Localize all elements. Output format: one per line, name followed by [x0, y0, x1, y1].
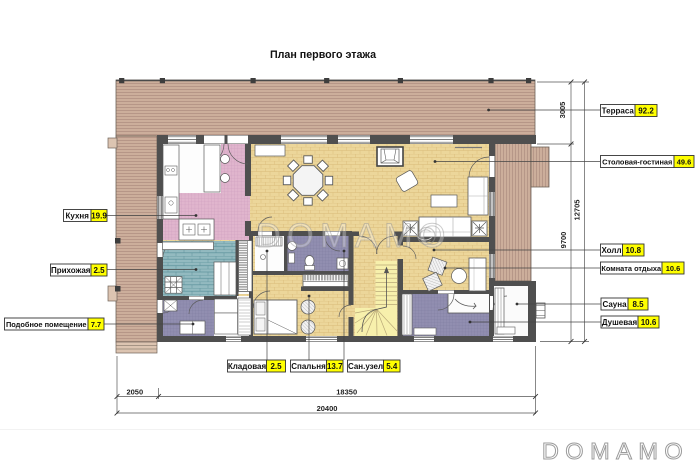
svg-text:12705: 12705 [573, 200, 582, 221]
svg-text:5.4: 5.4 [386, 362, 398, 371]
svg-text:2.5: 2.5 [270, 362, 282, 371]
svg-text:10.6: 10.6 [666, 264, 680, 273]
svg-text:DOMAMO: DOMAMO [256, 217, 452, 255]
svg-text:10.6: 10.6 [641, 318, 657, 327]
svg-text:Спальня: Спальня [291, 362, 326, 371]
svg-text:2050: 2050 [126, 388, 143, 397]
svg-text:Прихожая: Прихожая [51, 266, 91, 275]
svg-text:Кухня: Кухня [66, 212, 90, 221]
svg-text:Терраса: Терраса [602, 107, 635, 116]
svg-text:9700: 9700 [559, 232, 568, 249]
svg-text:Кладовая: Кладовая [228, 362, 267, 371]
svg-text:19.9: 19.9 [91, 212, 107, 221]
svg-text:92.2: 92.2 [638, 107, 654, 116]
svg-text:Холл: Холл [601, 246, 621, 255]
svg-text:49.6: 49.6 [677, 158, 691, 167]
svg-text:DOMAMO: DOMAMO [542, 438, 689, 464]
svg-text:18350: 18350 [336, 388, 357, 397]
svg-text:10.8: 10.8 [625, 246, 641, 255]
svg-text:8.5: 8.5 [632, 300, 644, 309]
svg-text:Сан.узел: Сан.узел [348, 362, 383, 371]
svg-text:Сауна: Сауна [602, 300, 627, 309]
svg-text:Душевая: Душевая [602, 318, 638, 327]
svg-text:Комната отдыха: Комната отдыха [601, 264, 662, 273]
svg-text:20400: 20400 [317, 404, 338, 413]
svg-text:2.5: 2.5 [93, 266, 105, 275]
svg-text:План первого этажа: План первого этажа [270, 49, 377, 61]
svg-text:Подобное помещение: Подобное помещение [6, 320, 87, 329]
svg-text:13.7: 13.7 [327, 362, 343, 371]
svg-text:7.7: 7.7 [91, 320, 101, 329]
svg-text:Столовая-гостиная: Столовая-гостиная [602, 158, 672, 167]
